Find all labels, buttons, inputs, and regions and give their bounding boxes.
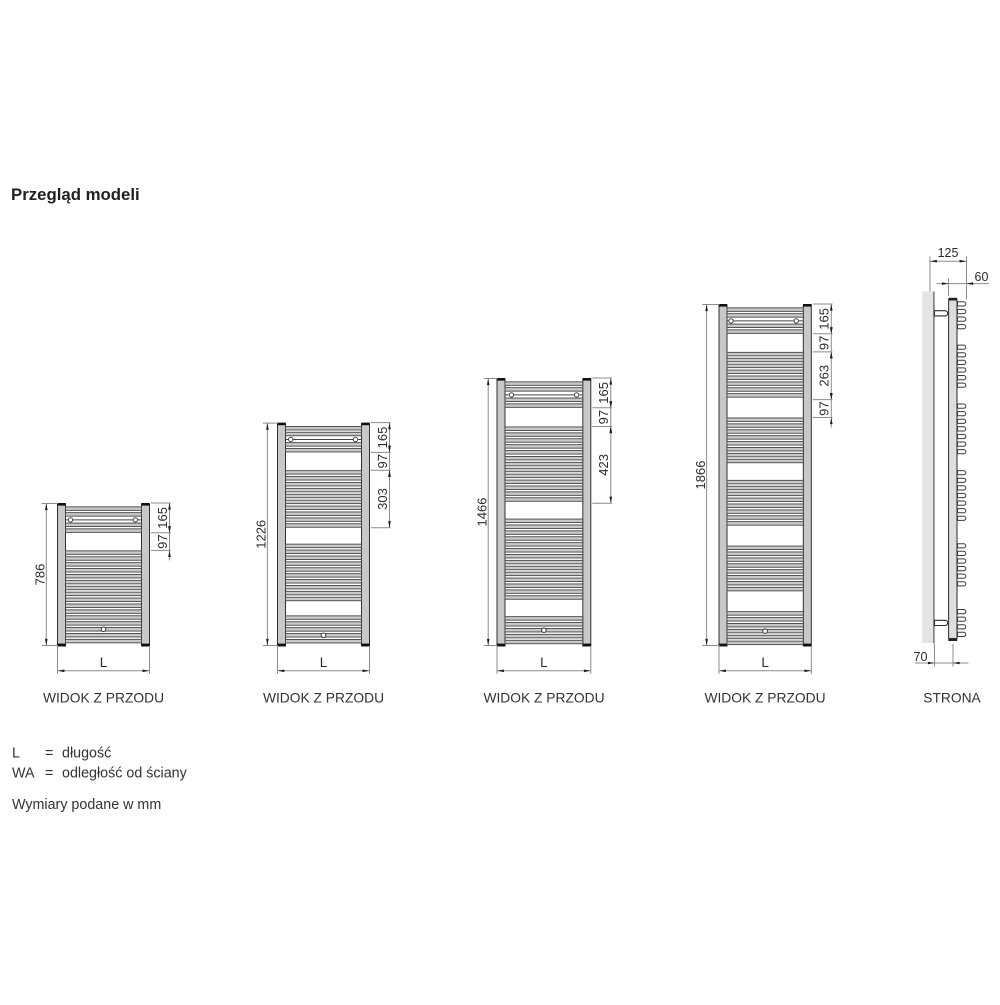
svg-text:165: 165 <box>155 507 170 529</box>
svg-text:Przegląd modeli: Przegląd modeli <box>11 185 140 204</box>
svg-text:WIDOK Z PRZODU: WIDOK Z PRZODU <box>263 691 384 706</box>
svg-text:60: 60 <box>975 270 989 284</box>
svg-text:165: 165 <box>375 427 390 449</box>
svg-text:303: 303 <box>375 488 390 510</box>
svg-text:Wymiary podane w mm: Wymiary podane w mm <box>12 797 161 813</box>
svg-text:L: L <box>12 746 20 762</box>
svg-text:423: 423 <box>596 454 611 476</box>
svg-text:=: = <box>45 746 53 762</box>
svg-text:70: 70 <box>914 650 928 664</box>
svg-text:długość: długość <box>62 746 111 762</box>
svg-text:97: 97 <box>817 401 832 415</box>
svg-text:1866: 1866 <box>693 461 708 490</box>
svg-text:L: L <box>540 655 548 670</box>
svg-text:165: 165 <box>596 382 611 404</box>
svg-text:165: 165 <box>817 308 832 330</box>
svg-text:WA: WA <box>12 766 35 782</box>
svg-text:125: 125 <box>938 246 959 260</box>
svg-text:97: 97 <box>817 336 832 350</box>
svg-text:L: L <box>320 655 328 670</box>
svg-text:263: 263 <box>817 365 832 387</box>
svg-text:1466: 1466 <box>474 498 489 527</box>
svg-text:=: = <box>45 766 53 782</box>
svg-text:97: 97 <box>596 410 611 424</box>
svg-text:L: L <box>100 655 108 670</box>
svg-text:odległość od ściany: odległość od ściany <box>62 766 188 782</box>
svg-text:786: 786 <box>33 564 48 586</box>
svg-text:WIDOK Z PRZODU: WIDOK Z PRZODU <box>43 691 164 706</box>
svg-text:97: 97 <box>155 534 170 548</box>
svg-text:STRONA: STRONA <box>923 691 981 706</box>
svg-text:WIDOK Z PRZODU: WIDOK Z PRZODU <box>704 691 825 706</box>
svg-text:97: 97 <box>375 454 390 468</box>
svg-text:1226: 1226 <box>254 520 269 549</box>
svg-text:L: L <box>761 655 769 670</box>
svg-text:WIDOK Z PRZODU: WIDOK Z PRZODU <box>483 691 604 706</box>
